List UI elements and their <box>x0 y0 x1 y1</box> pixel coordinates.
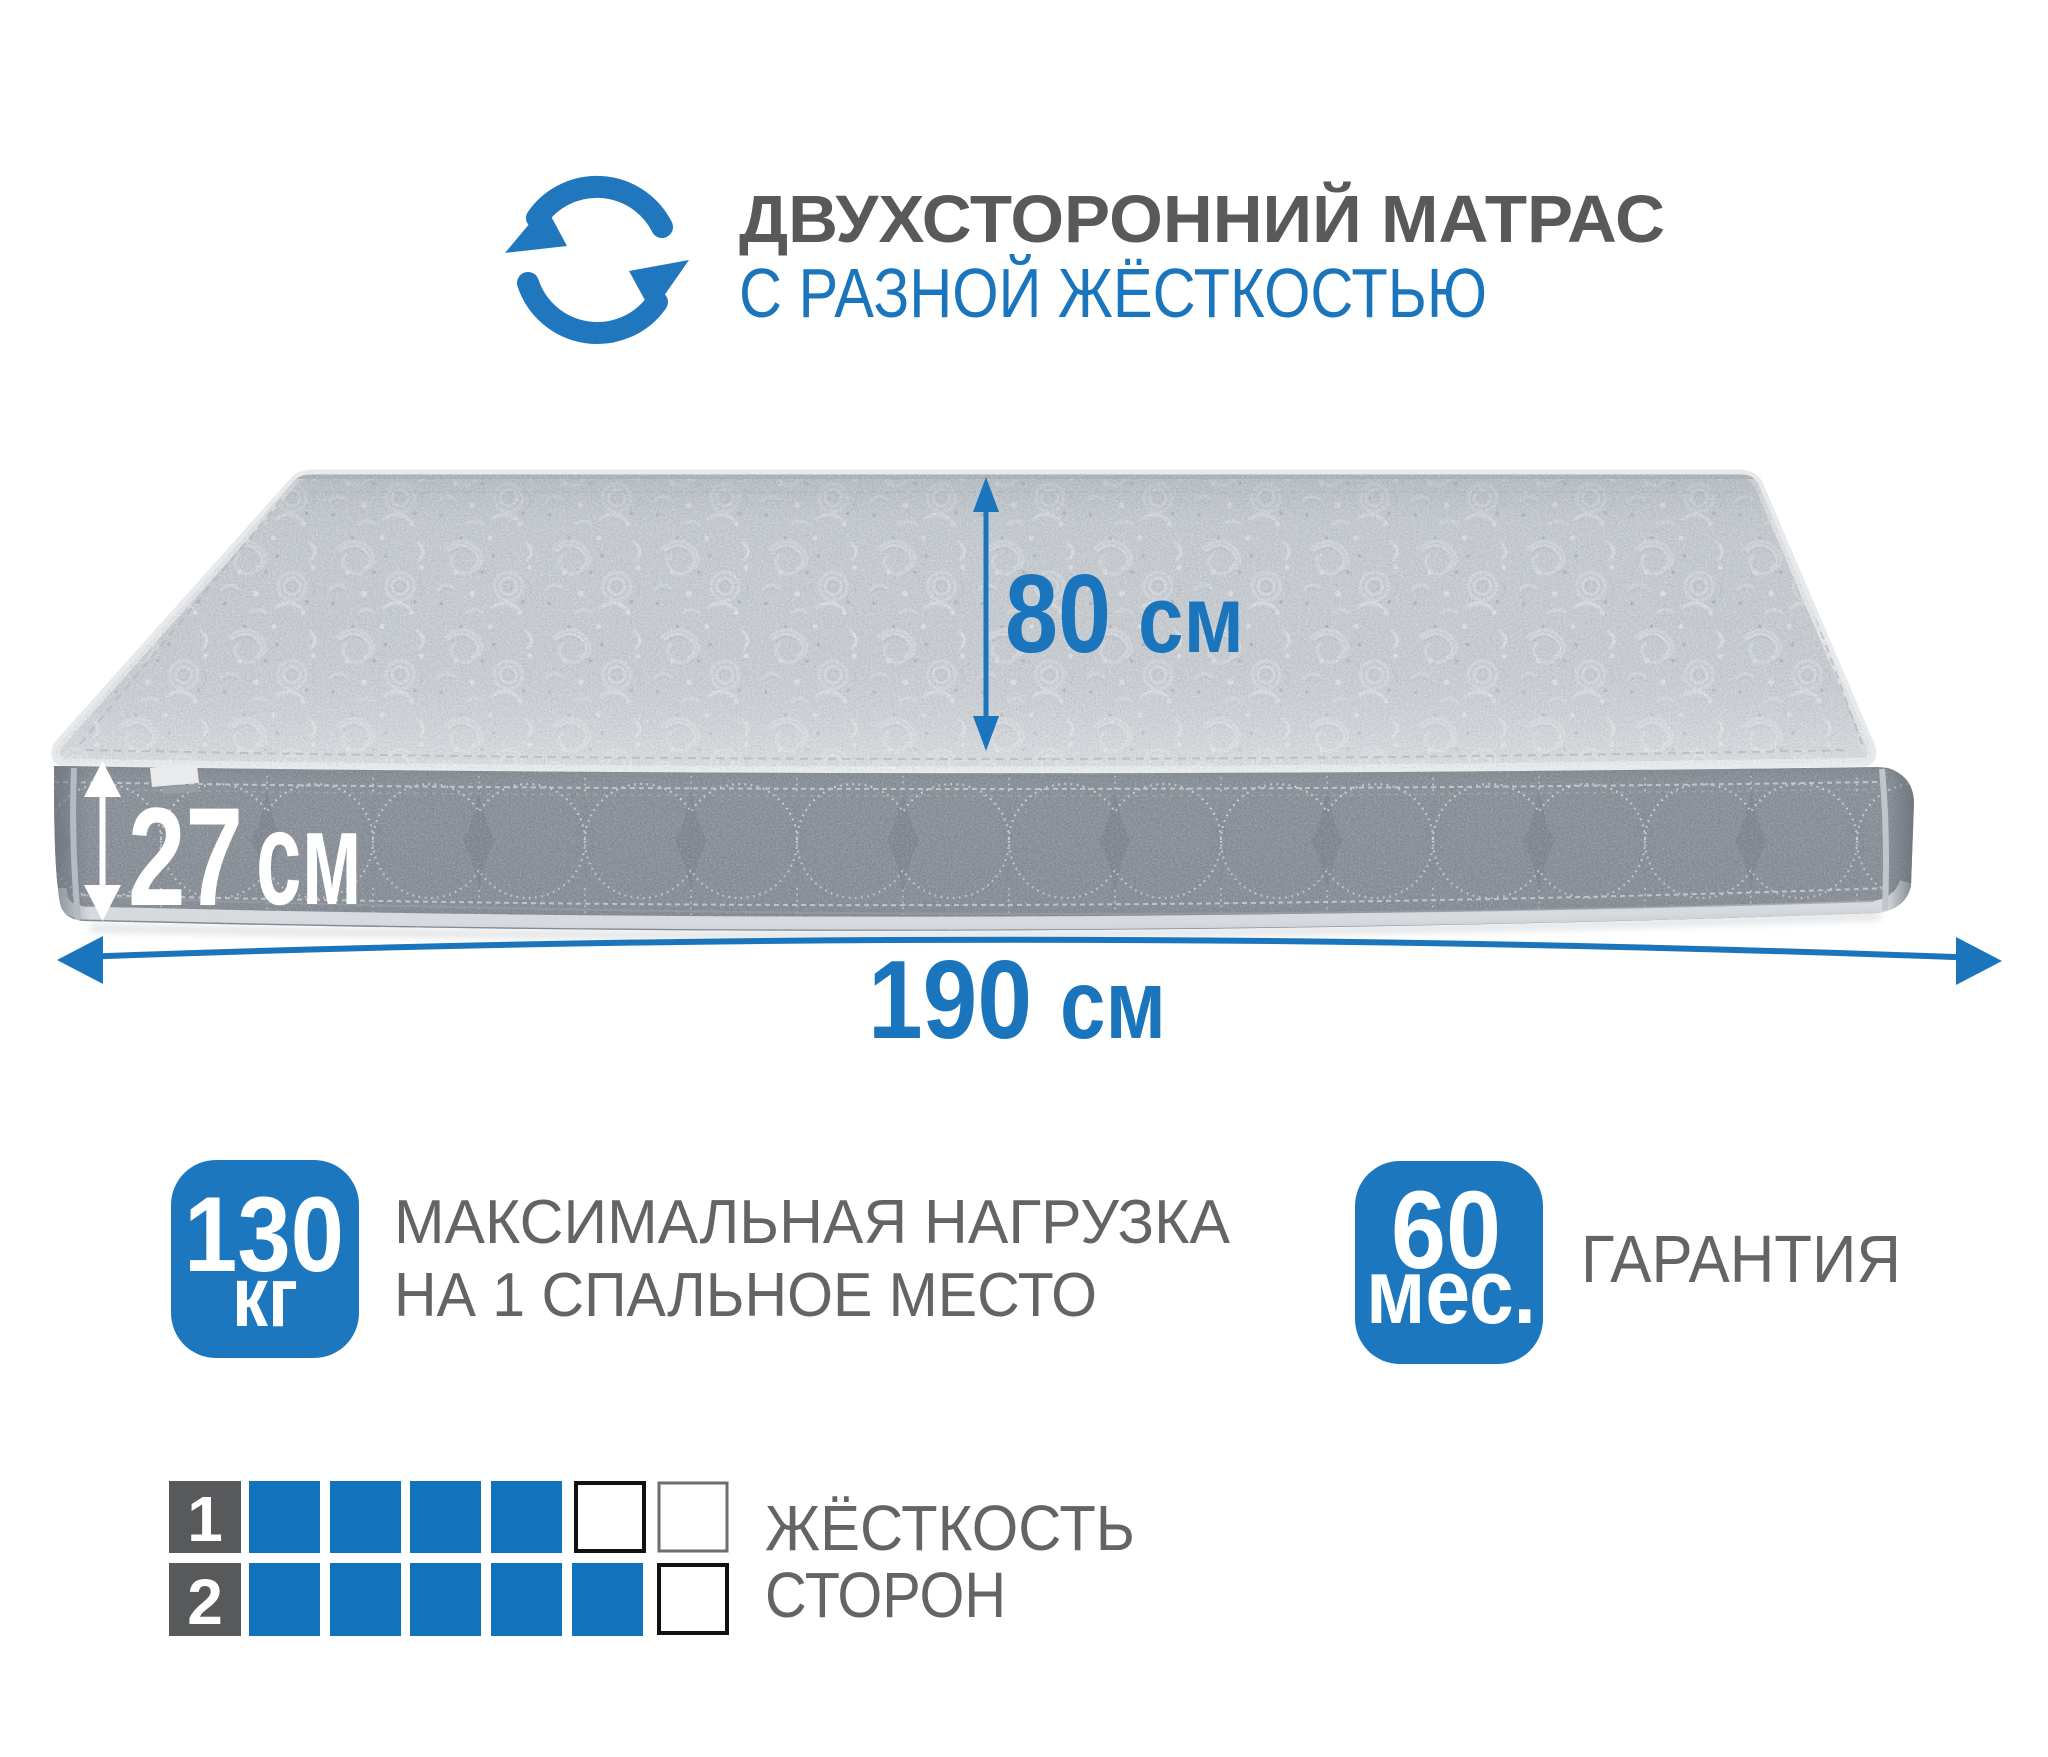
svg-text:2: 2 <box>187 1566 223 1638</box>
svg-text:27: 27 <box>128 778 243 935</box>
svg-text:МАКСИМАЛЬНАЯ НАГРУЗКА: МАКСИМАЛЬНАЯ НАГРУЗКА <box>394 1188 1231 1257</box>
svg-text:ГАРАНТИЯ: ГАРАНТИЯ <box>1581 1222 1901 1297</box>
svg-text:ЖЁСТКОСТЬ: ЖЁСТКОСТЬ <box>765 1492 1135 1564</box>
svg-text:1: 1 <box>187 1483 223 1555</box>
svg-text:мес.: мес. <box>1366 1241 1536 1343</box>
svg-text:кг: кг <box>232 1250 298 1345</box>
svg-text:см: см <box>256 784 362 933</box>
svg-text:ДВУХСТОРОННИЙ МАТРАС: ДВУХСТОРОННИЙ МАТРАС <box>739 181 1665 257</box>
svg-text:80: 80 <box>1005 552 1111 676</box>
svg-text:190: 190 <box>868 938 1032 1062</box>
svg-text:СТОРОН: СТОРОН <box>765 1559 1006 1631</box>
svg-text:НА 1 СПАЛЬНОЕ МЕСТО: НА 1 СПАЛЬНОЕ МЕСТО <box>394 1261 1097 1330</box>
svg-text:см: см <box>1060 949 1166 1059</box>
svg-text:С РАЗНОЙ ЖЁСТКОСТЬЮ: С РАЗНОЙ ЖЁСТКОСТЬЮ <box>739 253 1487 332</box>
svg-text:см: см <box>1138 566 1244 673</box>
